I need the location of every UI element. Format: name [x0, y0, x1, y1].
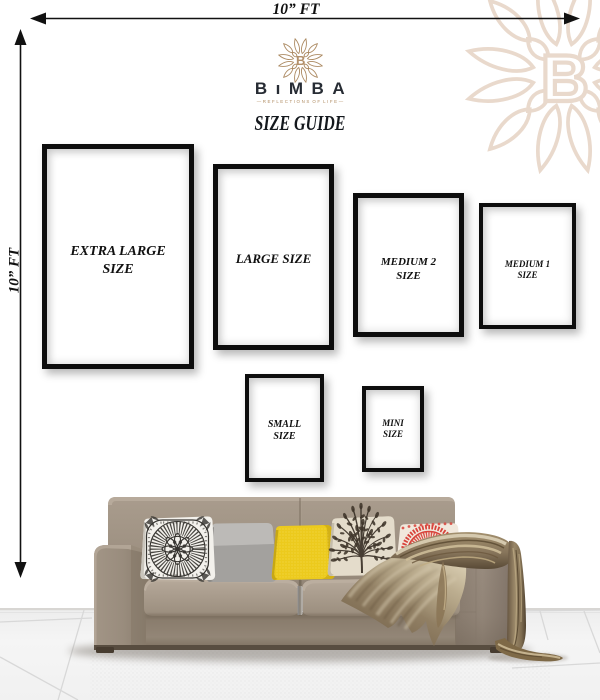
svg-text:B: B — [296, 53, 305, 68]
svg-text:B: B — [541, 41, 589, 115]
